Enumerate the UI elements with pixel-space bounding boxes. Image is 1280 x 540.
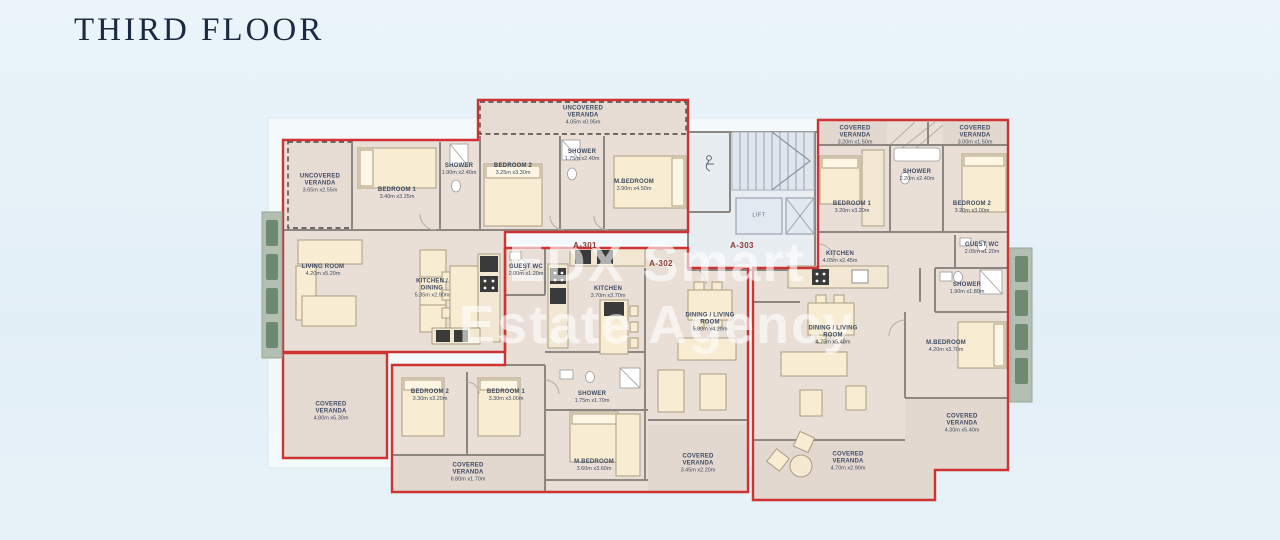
floor-plan-drawing <box>0 0 1280 540</box>
elevator-shaft-icon <box>786 198 814 234</box>
staircase <box>732 132 814 190</box>
louver-strip-left <box>262 212 282 358</box>
louver-strip-right <box>1010 248 1032 402</box>
lift <box>736 198 782 234</box>
floor-plan-page: THIRD FLOOR <box>0 0 1280 540</box>
